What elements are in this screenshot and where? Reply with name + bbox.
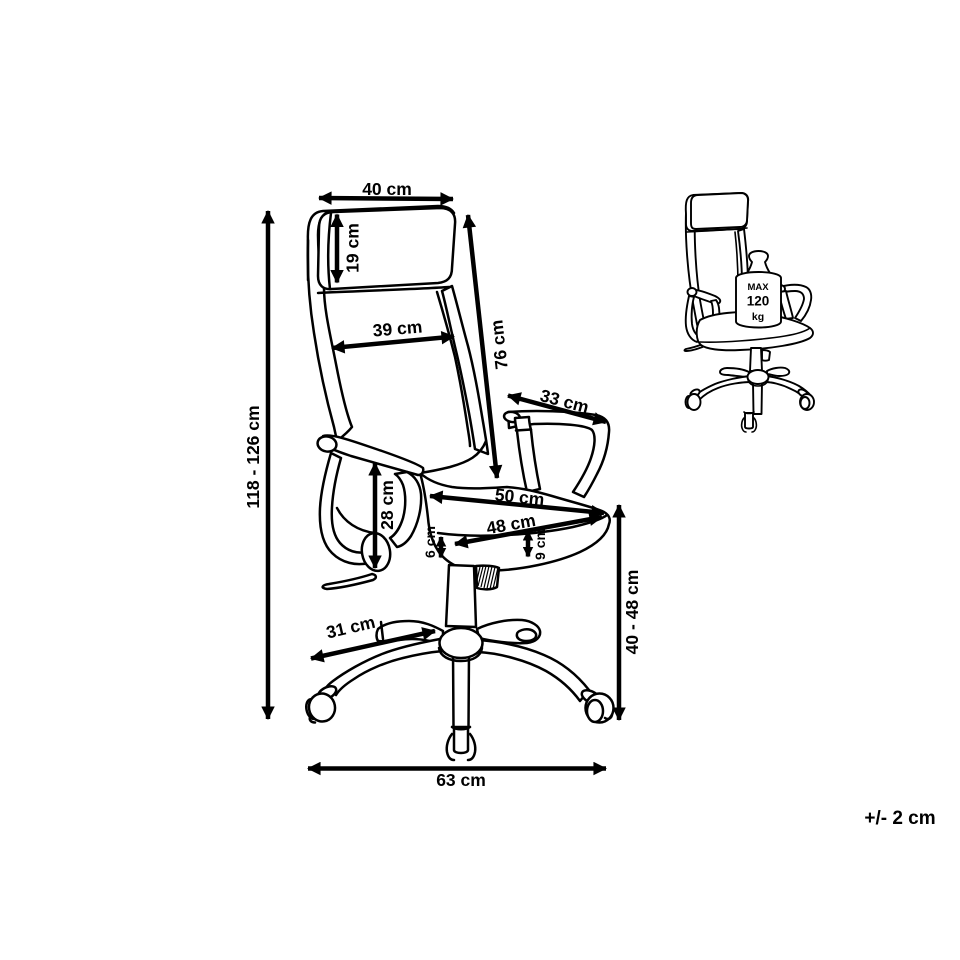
svg-text:120: 120 [747,294,770,309]
svg-text:MAX: MAX [747,282,769,293]
svg-text:118 - 126 cm: 118 - 126 cm [243,405,263,508]
svg-text:6 cm: 6 cm [422,526,438,558]
svg-text:9 cm: 9 cm [532,528,548,560]
svg-text:19 cm: 19 cm [343,223,363,273]
svg-text:kg: kg [752,311,764,323]
svg-text:40 - 48 cm: 40 - 48 cm [622,570,642,655]
svg-text:63 cm: 63 cm [436,770,486,790]
svg-text:+/- 2 cm: +/- 2 cm [864,808,935,829]
svg-text:40 cm: 40 cm [362,179,412,199]
svg-text:28 cm: 28 cm [377,480,397,530]
